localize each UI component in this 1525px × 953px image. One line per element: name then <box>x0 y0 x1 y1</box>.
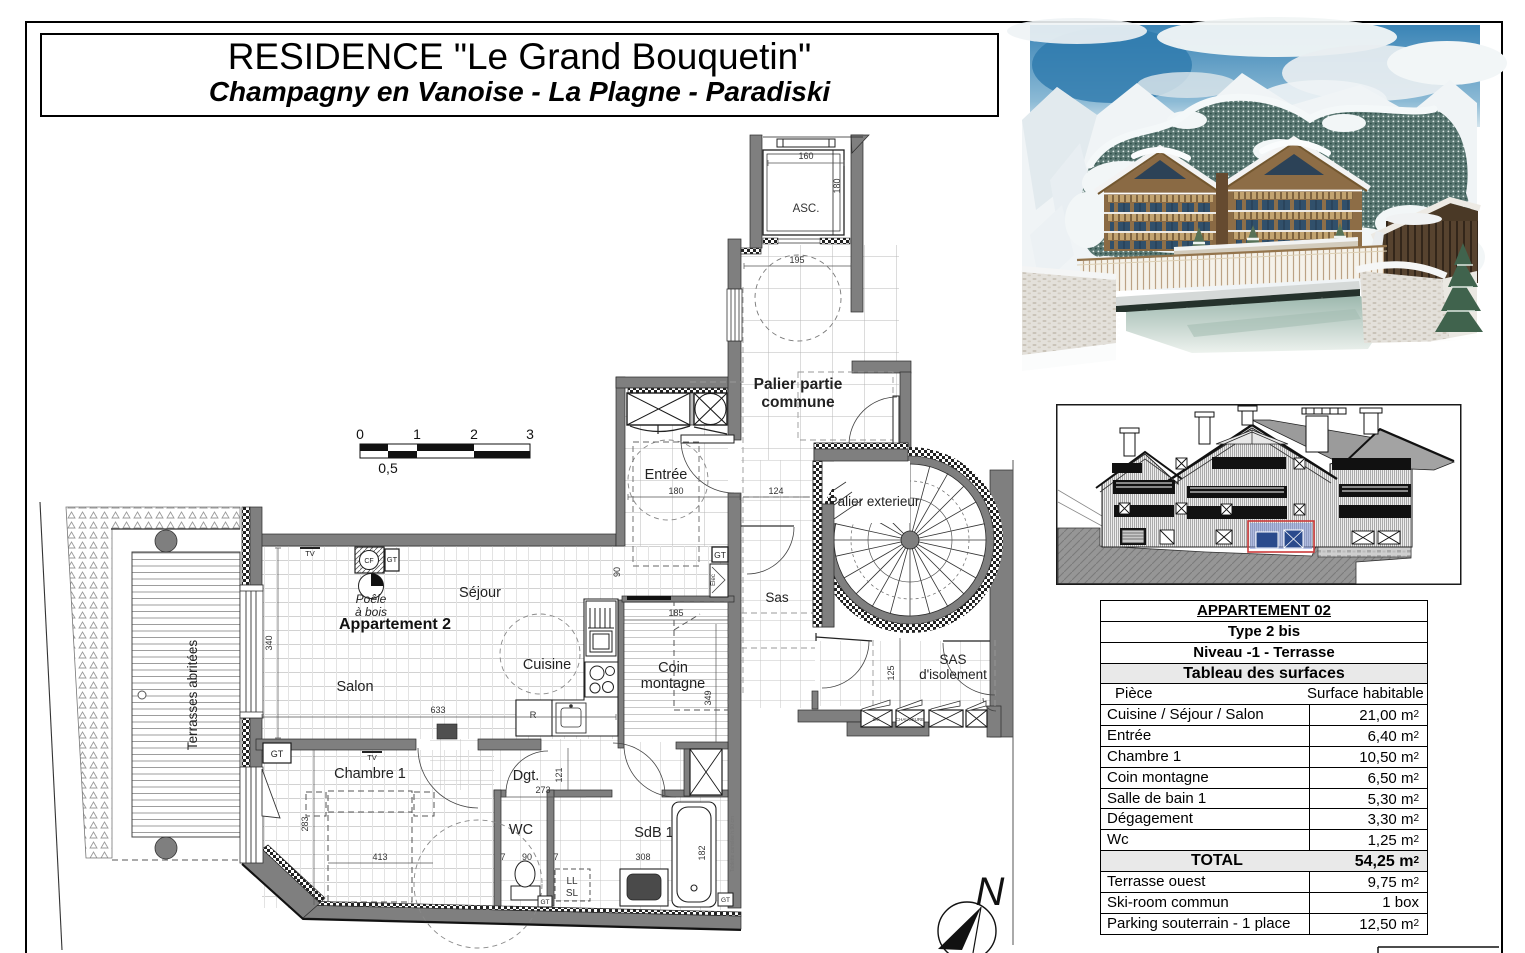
svg-text:90: 90 <box>522 852 532 862</box>
svg-text:Salon: Salon <box>336 679 373 695</box>
svg-text:WC: WC <box>509 822 533 838</box>
svg-text:182: 182 <box>697 845 707 860</box>
svg-text:1: 1 <box>413 426 421 442</box>
svg-text:Poêle: Poêle <box>356 592 387 606</box>
svg-text:GT: GT <box>714 550 726 560</box>
svg-text:Dgt.: Dgt. <box>513 768 540 784</box>
svg-text:Sas: Sas <box>765 590 789 605</box>
svg-text:commune: commune <box>761 394 835 411</box>
svg-text:7: 7 <box>553 852 558 862</box>
svg-text:N: N <box>976 870 1005 914</box>
svg-text:121: 121 <box>554 767 564 782</box>
svg-text:TV: TV <box>305 549 315 558</box>
svg-text:d'isolement: d'isolement <box>919 667 987 682</box>
svg-text:Cuisine: Cuisine <box>523 657 571 673</box>
svg-text:SAS: SAS <box>939 652 966 667</box>
svg-text:SL: SL <box>566 888 579 899</box>
svg-text:GT: GT <box>271 749 284 759</box>
svg-text:273: 273 <box>535 785 550 795</box>
svg-text:160: 160 <box>798 151 813 161</box>
svg-text:Tablette carrelée h.90 cm: Tablette carrelée h.90 cm <box>730 816 736 872</box>
svg-text:Coin: Coin <box>658 660 688 676</box>
svg-text:R: R <box>530 710 537 721</box>
svg-text:Terrasses abritées: Terrasses abritées <box>185 640 200 751</box>
svg-text:GT: GT <box>721 897 730 904</box>
svg-text:0,5: 0,5 <box>378 460 398 476</box>
svg-text:Séjour: Séjour <box>459 585 501 601</box>
svg-text:TV: TV <box>367 753 377 762</box>
svg-text:195: 195 <box>789 255 804 265</box>
svg-text:2: 2 <box>470 426 478 442</box>
svg-text:Chambre 1: Chambre 1 <box>334 766 406 782</box>
svg-text:180: 180 <box>668 486 683 496</box>
svg-text:633: 633 <box>430 705 445 715</box>
svg-text:185: 185 <box>668 608 683 618</box>
svg-text:125: 125 <box>886 665 896 680</box>
svg-text:349: 349 <box>703 690 713 705</box>
svg-text:340: 340 <box>264 635 274 650</box>
svg-text:413: 413 <box>372 852 387 862</box>
svg-text:7: 7 <box>500 852 505 862</box>
svg-text:montagne: montagne <box>641 676 706 692</box>
svg-text:308: 308 <box>635 852 650 862</box>
svg-text:Palier partie: Palier partie <box>754 376 843 393</box>
svg-text:SdB 1: SdB 1 <box>634 825 674 841</box>
svg-text:LL: LL <box>566 876 578 887</box>
svg-text:Entrée: Entrée <box>645 467 688 483</box>
svg-text:CHAUSSURE: CHAUSSURE <box>896 717 924 722</box>
svg-text:GT: GT <box>540 899 549 906</box>
svg-text:GT: GT <box>387 555 398 564</box>
svg-text:90: 90 <box>612 567 622 577</box>
svg-text:CF: CF <box>364 558 373 565</box>
svg-text:283: 283 <box>300 816 310 831</box>
svg-text:0: 0 <box>356 426 364 442</box>
svg-text:180: 180 <box>832 178 842 193</box>
svg-text:Palier exterieur: Palier exterieur <box>829 494 920 509</box>
svg-text:à bois: à bois <box>355 605 387 619</box>
svg-text:ASC.: ASC. <box>793 203 820 215</box>
svg-text:124: 124 <box>768 486 783 496</box>
svg-text:3: 3 <box>526 426 534 442</box>
svg-text:SKI: SKI <box>872 717 879 722</box>
svg-text:Elec: Elec <box>711 574 717 586</box>
